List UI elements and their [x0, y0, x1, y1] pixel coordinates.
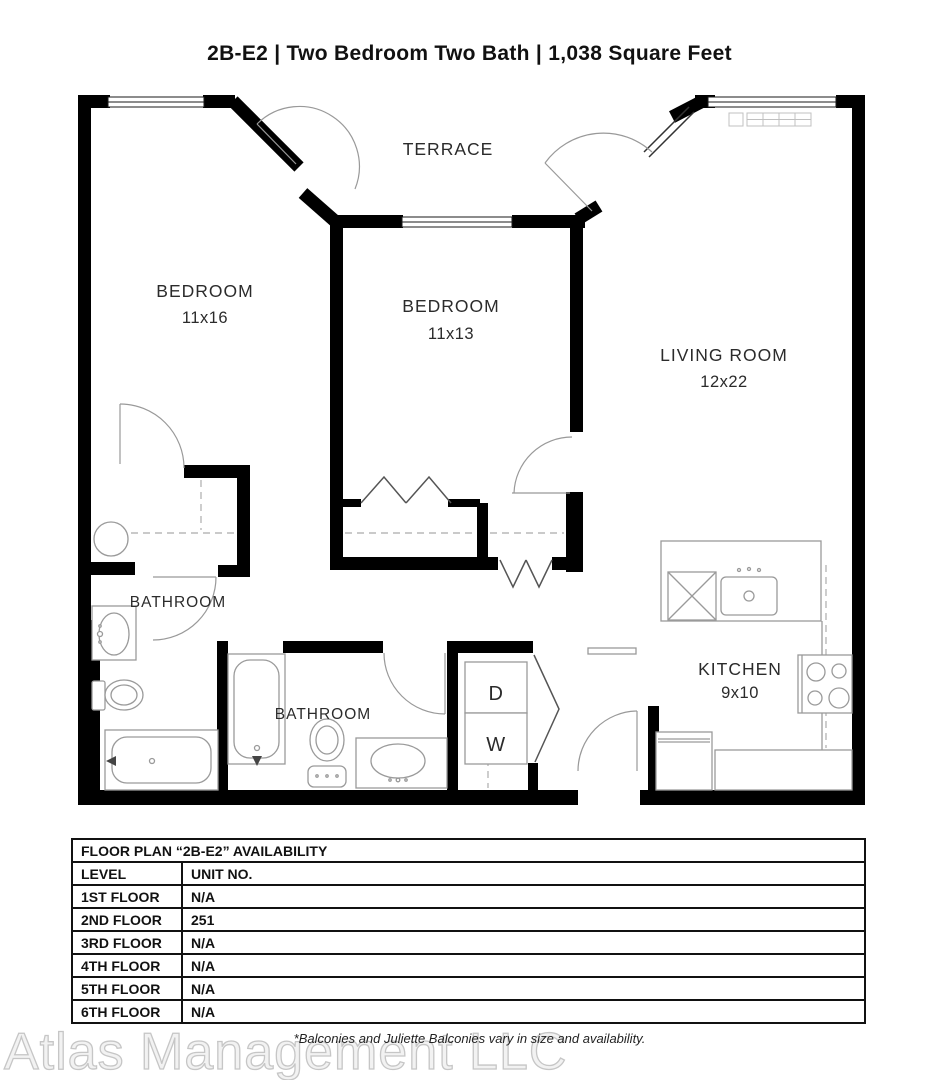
floor-plan-flyer: 2B-E2 | Two Bedroom Two Bath | 1,038 Squ… [0, 0, 939, 1080]
unit-cell: N/A [182, 954, 865, 977]
bedroom2-label: BEDROOM [402, 296, 499, 316]
bathroom2-toilet [308, 719, 346, 787]
bathroom2-label: BATHROOM [275, 706, 371, 723]
col-header-unit: UNIT NO. [182, 862, 865, 885]
windows [108, 97, 836, 227]
kitchen-label: KITCHEN [698, 659, 782, 679]
table-title: FLOOR PLAN “2B-E2” AVAILABILITY [72, 839, 865, 862]
water-heater-icon [94, 522, 128, 556]
level-cell: 1ST FLOOR [72, 885, 182, 908]
dryer-label: D [489, 683, 504, 705]
unit-cell: N/A [182, 1000, 865, 1023]
col-header-level: LEVEL [72, 862, 182, 885]
entry-shelf [588, 648, 636, 654]
diagonal-walls [233, 101, 701, 222]
unit-cell: N/A [182, 885, 865, 908]
kitchen-dims: 9x10 [721, 684, 759, 702]
window-seat-grid [729, 113, 811, 126]
living-room-label: LIVING ROOM [660, 345, 788, 365]
door-swings [120, 106, 652, 771]
table-header-row: LEVEL UNIT NO. [72, 862, 865, 885]
level-cell: 6TH FLOOR [72, 1000, 182, 1023]
availability-table: FLOOR PLAN “2B-E2” AVAILABILITY LEVEL UN… [71, 838, 866, 1024]
level-cell: 3RD FLOOR [72, 931, 182, 954]
table-row: 1ST FLOOR N/A [72, 885, 865, 908]
bathroom2-sink [356, 738, 447, 788]
bedroom2-dims: 11x13 [428, 325, 474, 343]
table-title-row: FLOOR PLAN “2B-E2” AVAILABILITY [72, 839, 865, 862]
living-room-dims: 12x22 [700, 373, 747, 391]
refrigerator [656, 732, 712, 790]
stove [798, 655, 852, 713]
level-cell: 2ND FLOOR [72, 908, 182, 931]
level-cell: 4TH FLOOR [72, 954, 182, 977]
bifold-doors [361, 477, 559, 762]
bathroom1-bathtub [105, 730, 218, 790]
unit-cell: 251 [182, 908, 865, 931]
footnote: *Balconies and Juliette Balconies vary i… [0, 1031, 939, 1046]
table-row: 4TH FLOOR N/A [72, 954, 865, 977]
bedroom1-dims: 11x16 [182, 309, 228, 327]
table-row: 3RD FLOOR N/A [72, 931, 865, 954]
washer-label: W [486, 734, 505, 756]
bathroom1-label: BATHROOM [130, 594, 226, 611]
terrace-label: TERRACE [403, 139, 494, 159]
bathroom1-toilet [92, 680, 143, 710]
table-row: 2ND FLOOR 251 [72, 908, 865, 931]
unit-cell: N/A [182, 977, 865, 1000]
table-row: 6TH FLOOR N/A [72, 1000, 865, 1023]
level-cell: 5TH FLOOR [72, 977, 182, 1000]
table-row: 5TH FLOOR N/A [72, 977, 865, 1000]
unit-cell: N/A [182, 931, 865, 954]
bedroom1-label: BEDROOM [156, 281, 253, 301]
bathroom1-sink [92, 606, 136, 660]
